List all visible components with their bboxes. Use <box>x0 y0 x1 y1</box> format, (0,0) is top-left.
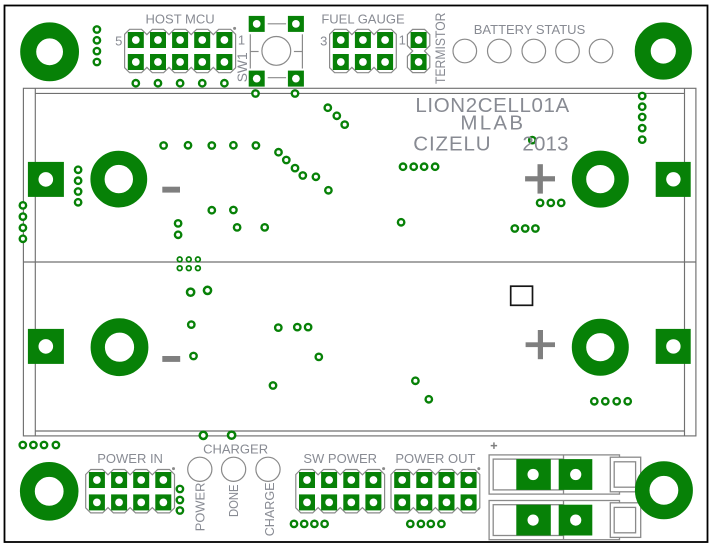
svg-text:SW1: SW1 <box>234 52 250 82</box>
svg-text:FUEL GAUGE: FUEL GAUGE <box>321 12 405 27</box>
svg-text:CIZELU: CIZELU <box>413 133 490 156</box>
svg-text:1: 1 <box>399 33 406 48</box>
svg-text:POWER: POWER <box>193 483 208 532</box>
svg-text:POWER OUT: POWER OUT <box>395 451 475 466</box>
svg-text:HOST MCU: HOST MCU <box>146 12 215 27</box>
svg-text:BATTERY STATUS: BATTERY STATUS <box>474 22 586 37</box>
svg-text:SW POWER: SW POWER <box>303 451 377 466</box>
svg-text:DONE: DONE <box>226 484 241 517</box>
svg-text:1: 1 <box>238 33 245 48</box>
svg-text:2013: 2013 <box>522 133 568 156</box>
svg-text:POWER IN: POWER IN <box>97 451 163 466</box>
svg-text:3: 3 <box>320 34 327 49</box>
svg-text:CHARGE: CHARGE <box>262 482 277 536</box>
svg-text:5: 5 <box>115 34 122 49</box>
svg-text:TERMISTOR: TERMISTOR <box>432 12 448 84</box>
svg-text:CHARGER: CHARGER <box>203 441 268 456</box>
